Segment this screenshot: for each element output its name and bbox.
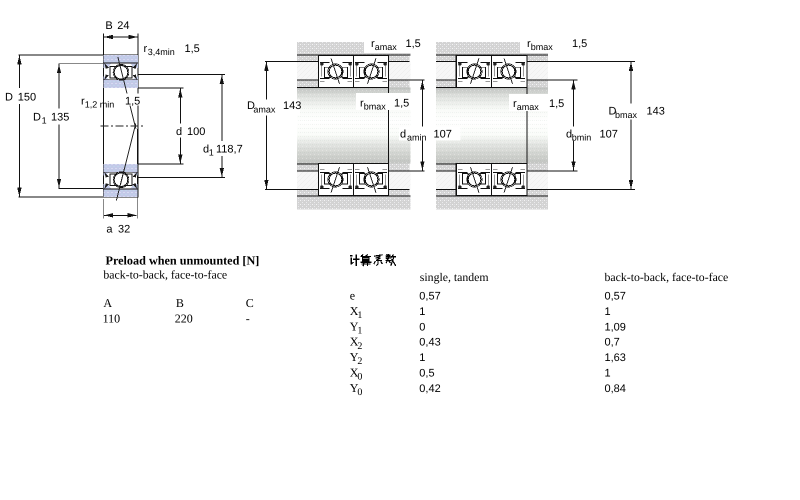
svg-text:32: 32 <box>118 224 130 236</box>
svg-text:bmax: bmax <box>615 110 638 120</box>
svg-text:110: 110 <box>103 312 121 326</box>
svg-text:0,5: 0,5 <box>419 368 434 380</box>
svg-text:1,5: 1,5 <box>394 98 409 110</box>
svg-text:1: 1 <box>419 352 425 364</box>
svg-text:1,2 min: 1,2 min <box>85 100 115 110</box>
svg-text:1,5: 1,5 <box>125 96 140 108</box>
svg-text:1: 1 <box>605 306 611 318</box>
svg-text:B: B <box>105 20 112 32</box>
svg-text:1: 1 <box>605 368 611 380</box>
svg-text:d: d <box>176 126 182 138</box>
svg-text:Preload when unmounted [N]: Preload when unmounted [N] <box>106 254 260 268</box>
svg-text:amax: amax <box>253 105 276 115</box>
svg-text:D: D <box>33 112 41 124</box>
svg-text:C: C <box>246 296 254 310</box>
svg-text:bmin: bmin <box>572 133 592 143</box>
svg-text:0,7: 0,7 <box>605 337 620 349</box>
svg-text:1,5: 1,5 <box>406 38 421 50</box>
svg-text:0: 0 <box>357 387 362 398</box>
svg-text:1,5: 1,5 <box>572 38 587 50</box>
svg-text:0,57: 0,57 <box>419 291 440 303</box>
svg-text:bmax: bmax <box>364 102 387 112</box>
svg-text:1,5: 1,5 <box>185 43 200 55</box>
svg-text:e: e <box>350 289 355 303</box>
svg-text:0,42: 0,42 <box>419 383 440 395</box>
svg-text:bmax: bmax <box>531 42 554 52</box>
svg-text:back-to-back, face-to-face: back-to-back, face-to-face <box>103 268 227 282</box>
svg-text:D: D <box>5 92 13 104</box>
svg-text:150: 150 <box>18 92 36 104</box>
svg-text:107: 107 <box>434 129 452 141</box>
svg-text:single, tandem: single, tandem <box>420 270 489 284</box>
svg-text:1: 1 <box>209 148 214 158</box>
svg-text:1,63: 1,63 <box>605 352 626 364</box>
svg-text:24: 24 <box>117 20 129 32</box>
svg-text:B: B <box>176 296 184 310</box>
svg-text:100: 100 <box>187 126 205 138</box>
svg-text:118,7: 118,7 <box>216 144 243 156</box>
svg-text:-: - <box>246 312 250 326</box>
svg-text:amax: amax <box>375 42 398 52</box>
svg-text:1,5: 1,5 <box>549 98 564 110</box>
svg-text:a: a <box>106 224 113 236</box>
svg-text:d: d <box>400 129 406 141</box>
svg-text:back-to-back, face-to-face: back-to-back, face-to-face <box>605 270 729 284</box>
svg-text:1,09: 1,09 <box>605 321 626 333</box>
svg-text:107: 107 <box>600 129 618 141</box>
svg-text:1: 1 <box>419 306 425 318</box>
svg-text:0,43: 0,43 <box>419 337 440 349</box>
svg-text:A: A <box>103 296 112 310</box>
svg-text:135: 135 <box>51 112 69 124</box>
svg-text:143: 143 <box>283 100 301 112</box>
svg-text:220: 220 <box>175 312 193 326</box>
svg-text:1: 1 <box>42 116 47 126</box>
svg-text:143: 143 <box>647 106 665 118</box>
svg-text:amin: amin <box>407 133 427 143</box>
svg-text:3,4min: 3,4min <box>148 47 175 57</box>
svg-text:amax: amax <box>517 102 540 112</box>
svg-text:0,84: 0,84 <box>605 383 626 395</box>
svg-text:0,57: 0,57 <box>605 291 626 303</box>
svg-text:0: 0 <box>419 321 425 333</box>
